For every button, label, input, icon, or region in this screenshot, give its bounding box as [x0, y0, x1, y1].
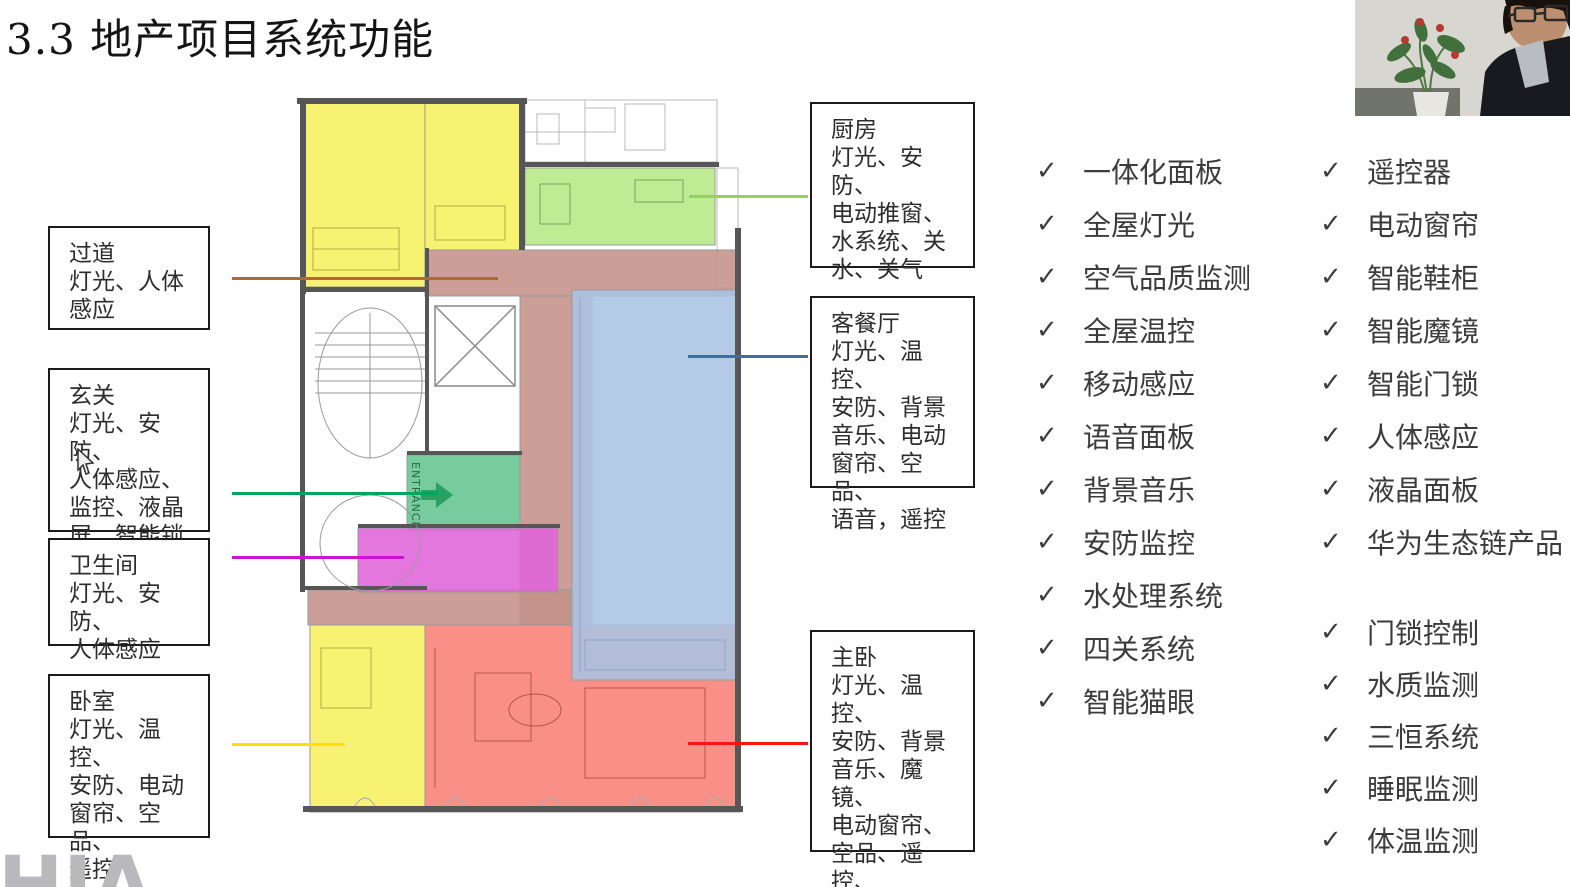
label-box-bedroom: 卧室 灯光、温控、 安防、电动 窗帘、空品、 遥控 — [48, 674, 210, 838]
room-bathroom — [358, 528, 558, 592]
checklist-label: 安防监控 — [1083, 522, 1195, 562]
list-item: ✓液晶面板 — [1320, 474, 1563, 504]
checklist-label: 门锁控制 — [1367, 612, 1479, 652]
list-item: ✓空气品质监测 — [1036, 262, 1251, 292]
check-icon: ✓ — [1036, 156, 1083, 186]
check-icon: ✓ — [1036, 315, 1083, 345]
checklist-column-2-bottom: ✓门锁控制 ✓水质监测 ✓三恒系统 ✓睡眠监测 ✓体温监测 — [1320, 617, 1479, 877]
list-item: ✓华为生态链产品 — [1320, 527, 1563, 557]
checklist-label: 华为生态链产品 — [1367, 522, 1563, 562]
list-item: ✓电动窗帘 — [1320, 209, 1563, 239]
check-icon: ✓ — [1320, 669, 1367, 699]
webcam-scene — [1355, 0, 1570, 116]
room-kitchen — [525, 168, 715, 245]
corridor-top — [425, 250, 738, 296]
leader-line-corridor — [232, 277, 498, 280]
check-icon: ✓ — [1320, 773, 1367, 803]
check-icon: ✓ — [1036, 527, 1083, 557]
leader-line-bedroom — [232, 743, 345, 746]
leader-line-kitchen — [689, 195, 808, 198]
checklist-label: 智能猫眼 — [1083, 681, 1195, 721]
check-icon: ✓ — [1036, 368, 1083, 398]
check-icon: ✓ — [1320, 209, 1367, 239]
room-bedroom-top-right — [425, 103, 520, 250]
list-item: ✓门锁控制 — [1320, 617, 1479, 647]
floor-plan: ENTRANCE — [285, 88, 743, 820]
list-item: ✓智能猫眼 — [1036, 686, 1251, 716]
checklist-label: 空气品质监测 — [1083, 257, 1251, 297]
label-box-bathroom: 卫生间 灯光、安防、 人体感应 — [48, 538, 210, 646]
check-icon: ✓ — [1320, 156, 1367, 186]
checklist-label: 智能魔镜 — [1367, 310, 1479, 350]
mouse-cursor-icon — [76, 448, 96, 476]
check-icon: ✓ — [1320, 421, 1367, 451]
list-item: ✓背景音乐 — [1036, 474, 1251, 504]
checklist-label: 遥控器 — [1367, 151, 1451, 191]
check-icon: ✓ — [1036, 474, 1083, 504]
list-item: ✓水处理系统 — [1036, 580, 1251, 610]
list-item: ✓智能门锁 — [1320, 368, 1563, 398]
checklist-label: 背景音乐 — [1083, 469, 1195, 509]
room-bedroom-bottom — [310, 625, 425, 812]
checklist-label: 睡眠监测 — [1367, 768, 1479, 808]
list-item: ✓三恒系统 — [1320, 721, 1479, 751]
list-item: ✓智能魔镜 — [1320, 315, 1563, 345]
list-item: ✓移动感应 — [1036, 368, 1251, 398]
checklist-column-1: ✓一体化面板 ✓全屋灯光 ✓空气品质监测 ✓全屋温控 ✓移动感应 ✓语音面板 ✓… — [1036, 156, 1251, 739]
checklist-label: 移动感应 — [1083, 363, 1195, 403]
check-icon: ✓ — [1320, 721, 1367, 751]
check-icon: ✓ — [1320, 474, 1367, 504]
label-box-entry: 玄关 灯光、安防、 人体感应、 监控、液晶 屏，智能锁 — [48, 368, 210, 532]
checklist-label: 人体感应 — [1367, 416, 1479, 456]
checklist-label: 体温监测 — [1367, 820, 1479, 860]
check-icon: ✓ — [1320, 315, 1367, 345]
list-item: ✓遥控器 — [1320, 156, 1563, 186]
entrance-label: ENTRANCE — [409, 462, 422, 529]
room-living — [572, 290, 740, 680]
list-item: ✓人体感应 — [1320, 421, 1563, 451]
list-item: ✓语音面板 — [1036, 421, 1251, 451]
checklist-label: 一体化面板 — [1083, 151, 1223, 191]
list-item: ✓智能鞋柜 — [1320, 262, 1563, 292]
checklist-label: 液晶面板 — [1367, 469, 1479, 509]
corridor-bottom — [308, 590, 570, 625]
list-item: ✓睡眠监测 — [1320, 773, 1479, 803]
check-icon: ✓ — [1036, 421, 1083, 451]
page-title: 3.3 地产项目系统功能 — [6, 6, 434, 67]
check-icon: ✓ — [1320, 368, 1367, 398]
webcam-video — [1355, 0, 1570, 116]
room-bedroom-top-left — [305, 103, 425, 287]
checklist-label: 语音面板 — [1083, 416, 1195, 456]
check-icon: ✓ — [1036, 633, 1083, 663]
leader-line-master — [688, 742, 808, 745]
check-icon: ✓ — [1320, 617, 1367, 647]
label-box-kitchen: 厨房 灯光、安防、 电动推窗、 水系统、关 水、关气 — [810, 102, 975, 268]
check-icon: ✓ — [1036, 209, 1083, 239]
list-item: ✓全屋温控 — [1036, 315, 1251, 345]
list-item: ✓水质监测 — [1320, 669, 1479, 699]
watermark-logo: HIA — [0, 841, 153, 887]
checklist-label: 四关系统 — [1083, 628, 1195, 668]
checklist-label: 智能门锁 — [1367, 363, 1479, 403]
check-icon: ✓ — [1320, 825, 1367, 855]
label-box-master: 主卧 灯光、温控、 安防、背景 音乐、魔镜、 电动窗帘、 空品、遥控、 智能鞋柜 — [810, 630, 975, 852]
checklist-label: 水处理系统 — [1083, 575, 1223, 615]
checklist-label: 全屋温控 — [1083, 310, 1195, 350]
check-icon: ✓ — [1036, 580, 1083, 610]
slide: 3.3 地产项目系统功能 — [0, 0, 1570, 887]
list-item: ✓四关系统 — [1036, 633, 1251, 663]
check-icon: ✓ — [1320, 527, 1367, 557]
checklist-column-2-top: ✓遥控器 ✓电动窗帘 ✓智能鞋柜 ✓智能魔镜 ✓智能门锁 ✓人体感应 ✓液晶面板… — [1320, 156, 1563, 580]
label-box-living: 客餐厅 灯光、温控、 安防、背景 音乐、电动 窗帘、空品、 语音，遥控 — [810, 296, 975, 488]
leader-line-entry — [232, 492, 438, 495]
list-item: ✓体温监测 — [1320, 825, 1479, 855]
checklist-label: 三恒系统 — [1367, 716, 1479, 756]
checklist-label: 智能鞋柜 — [1367, 257, 1479, 297]
checklist-label: 电动窗帘 — [1367, 204, 1479, 244]
label-box-corridor: 过道 灯光、人体 感应 — [48, 226, 210, 330]
plant-pot — [1413, 92, 1449, 116]
list-item: ✓安防监控 — [1036, 527, 1251, 557]
checklist-label: 全屋灯光 — [1083, 204, 1195, 244]
check-icon: ✓ — [1320, 262, 1367, 292]
leader-line-living — [688, 355, 808, 358]
list-item: ✓全屋灯光 — [1036, 209, 1251, 239]
list-item: ✓一体化面板 — [1036, 156, 1251, 186]
check-icon: ✓ — [1036, 686, 1083, 716]
checklist-label: 水质监测 — [1367, 664, 1479, 704]
leader-line-bathroom — [232, 556, 404, 559]
check-icon: ✓ — [1036, 262, 1083, 292]
